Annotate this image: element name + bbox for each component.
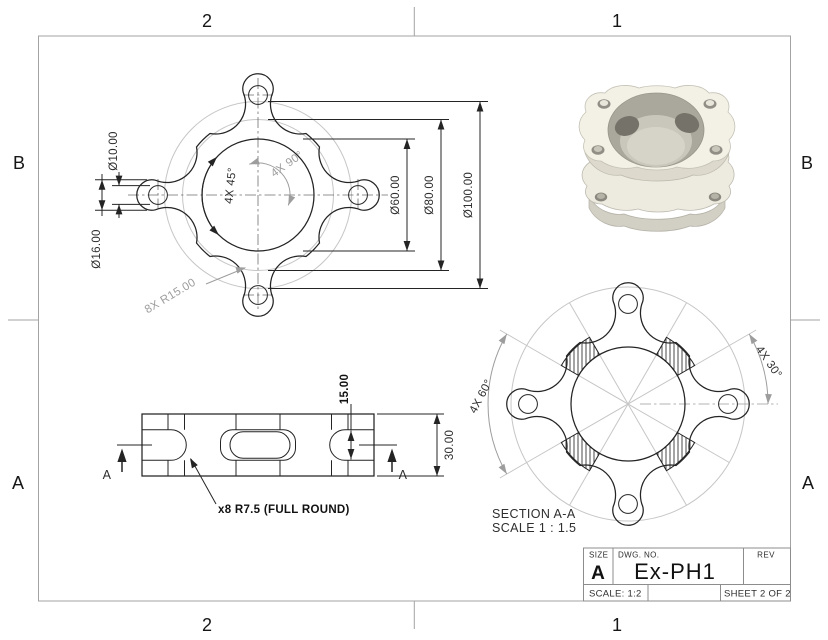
dim-phi60-label: Ø60.00 bbox=[390, 175, 402, 215]
dim-30-label: 30.00 bbox=[444, 430, 456, 460]
dim-angle90: 4X 90° bbox=[248, 149, 306, 207]
dim-angle30-label: 4X 30° bbox=[753, 344, 784, 381]
dim-phi10: Ø10.00 bbox=[108, 131, 150, 218]
center-slot-inner bbox=[230, 432, 290, 459]
front-view: A A 15.00 30.00 x8 R7.5 (FULL ROUND) bbox=[103, 374, 456, 516]
section-view: 4X 60° 4X 30° SECTION A-A SCALE 1 : 1.5 bbox=[467, 283, 783, 535]
zone-label-bottom-right: 1 bbox=[612, 615, 622, 635]
cut-label-right: A bbox=[399, 468, 408, 482]
zone-label-left-top: B bbox=[13, 153, 25, 173]
bolt-hole bbox=[519, 395, 538, 414]
drawing-sheet: 2 1 2 1 B A B A bbox=[0, 0, 828, 640]
dim-angle45-label: 4X 45° bbox=[223, 167, 239, 205]
dim-phi16-label: Ø16.00 bbox=[91, 229, 103, 269]
dim-15-label: 15.00 bbox=[339, 374, 351, 404]
sheet-label: SHEET 2 OF 2 bbox=[724, 589, 791, 600]
rev-label: REV bbox=[757, 551, 775, 560]
section-scale: SCALE 1 : 1.5 bbox=[492, 521, 576, 535]
front-outline bbox=[142, 414, 374, 476]
dim-phi100-label: Ø100.00 bbox=[463, 172, 475, 218]
dim-phi10-label: Ø10.00 bbox=[108, 131, 120, 171]
zone-label-top-right: 1 bbox=[612, 11, 622, 31]
scale-label: SCALE: 1:2 bbox=[589, 589, 642, 600]
dim-angle90-label: 4X 90° bbox=[269, 149, 306, 180]
section-caption: SECTION A-A bbox=[492, 507, 576, 521]
dwg-no-value: Ex-PH1 bbox=[634, 559, 716, 584]
zone-label-bottom-left: 2 bbox=[202, 615, 212, 635]
dim-radius15: 8X R15.00 bbox=[143, 264, 247, 316]
title-block: SIZE A DWG. NO. Ex-PH1 REV SCALE: 1:2 SH… bbox=[584, 548, 791, 601]
dim-angle60: 4X 60° bbox=[467, 332, 509, 476]
cut-label-left: A bbox=[103, 468, 112, 482]
full-round-note: x8 R7.5 (FULL ROUND) bbox=[187, 456, 350, 516]
top-view: Ø60.00 Ø80.00 Ø100.00 Ø10 bbox=[91, 74, 488, 317]
full-round-note-label: x8 R7.5 (FULL ROUND) bbox=[218, 504, 350, 516]
zone-label-top-left: 2 bbox=[202, 11, 212, 31]
reference-lines bbox=[500, 303, 756, 506]
bolt-hole bbox=[619, 295, 638, 314]
dim-phi80-label: Ø80.00 bbox=[424, 175, 436, 215]
size-label: SIZE bbox=[589, 551, 608, 560]
zone-label-right-bottom: A bbox=[802, 473, 814, 493]
dim-radius15-label: 8X R15.00 bbox=[143, 277, 198, 317]
dim-angle60-label: 4X 60° bbox=[467, 378, 495, 416]
dim-angle45: 4X 45° bbox=[202, 154, 239, 237]
zone-label-right-top: B bbox=[801, 153, 813, 173]
zone-label-left-bottom: A bbox=[12, 473, 24, 493]
size-value: A bbox=[591, 563, 605, 584]
iso-view bbox=[579, 85, 735, 231]
bolt-hole bbox=[619, 495, 638, 514]
dim-15: 15.00 bbox=[339, 374, 354, 460]
iso-bore bbox=[608, 93, 704, 167]
dim-angle30: 4X 30° bbox=[746, 332, 784, 404]
